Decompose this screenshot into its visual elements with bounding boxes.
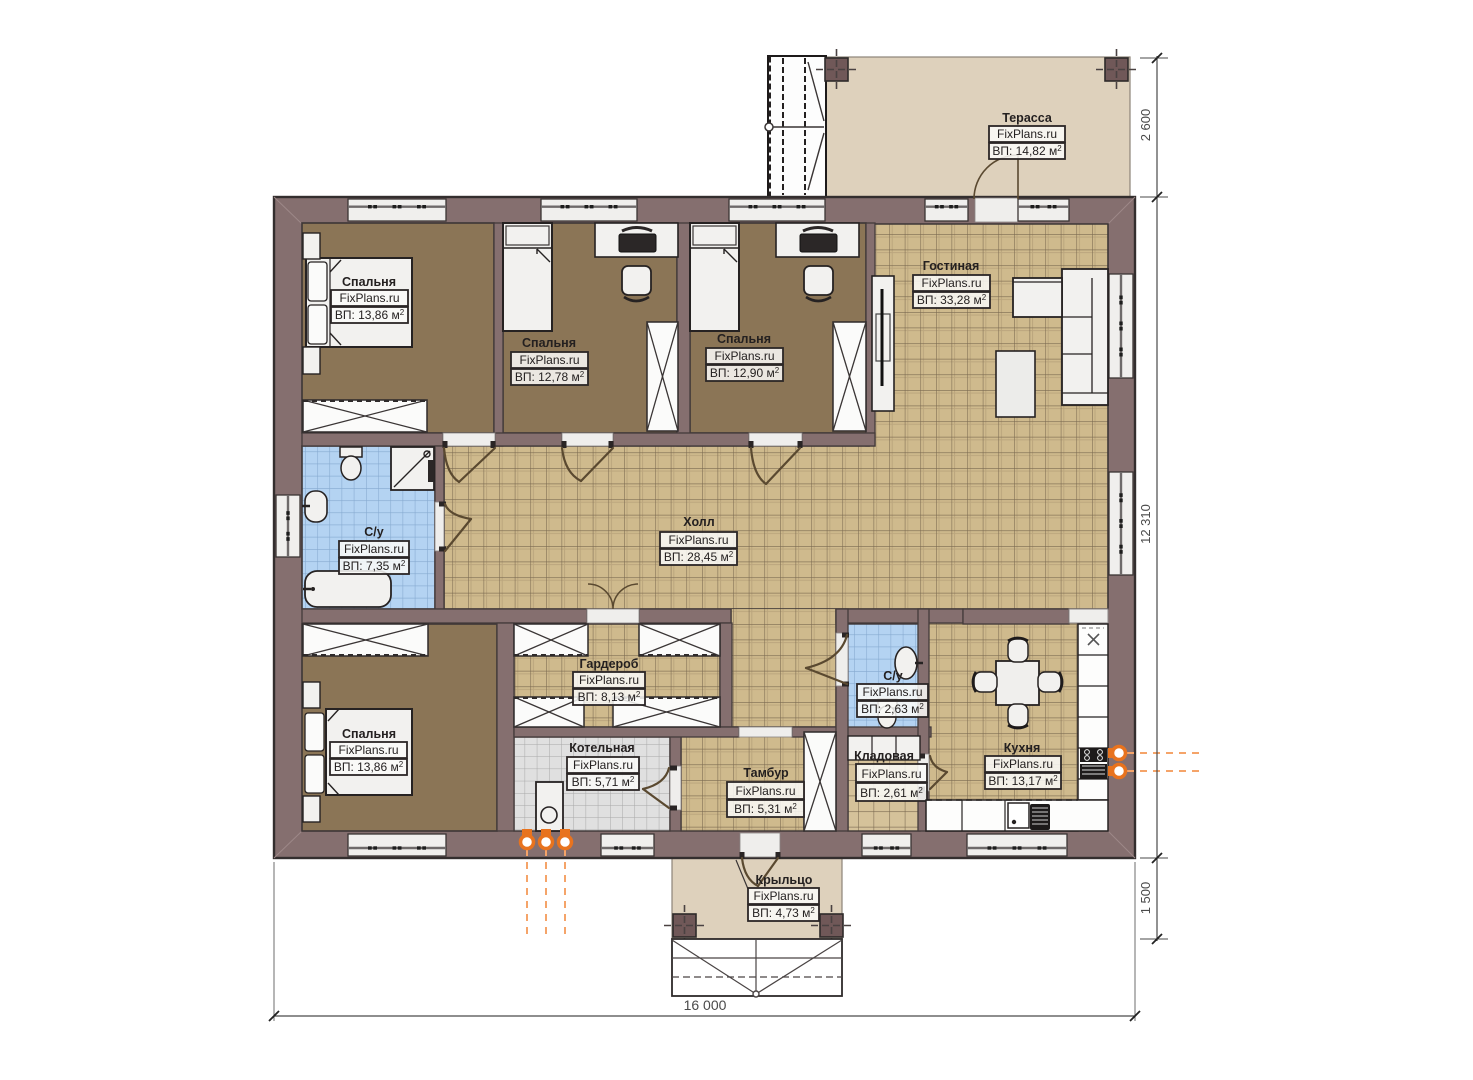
svg-text:ВП: 13,86 м2: ВП: 13,86 м2 bbox=[334, 760, 404, 774]
svg-text:FixPlans.ru: FixPlans.ru bbox=[921, 276, 981, 290]
svg-text:ВП: 12,90 м2: ВП: 12,90 м2 bbox=[710, 366, 780, 380]
svg-text:FixPlans.ru: FixPlans.ru bbox=[339, 291, 399, 305]
svg-text:Терасса: Терасса bbox=[1002, 111, 1053, 125]
svg-text:FixPlans.ru: FixPlans.ru bbox=[861, 767, 921, 781]
svg-text:Тамбур: Тамбур bbox=[743, 766, 789, 780]
svg-text:Спальня: Спальня bbox=[342, 275, 396, 289]
svg-text:16 000: 16 000 bbox=[684, 997, 727, 1013]
svg-text:Гостиная: Гостиная bbox=[923, 259, 980, 273]
svg-text:ВП: 4,73 м2: ВП: 4,73 м2 bbox=[752, 906, 815, 920]
svg-text:FixPlans.ru: FixPlans.ru bbox=[338, 743, 398, 757]
svg-text:ВП: 2,61 м2: ВП: 2,61 м2 bbox=[860, 786, 923, 800]
svg-text:FixPlans.ru: FixPlans.ru bbox=[735, 784, 795, 798]
svg-text:ВП: 7,35 м2: ВП: 7,35 м2 bbox=[343, 559, 406, 573]
svg-text:Кухня: Кухня bbox=[1004, 741, 1041, 755]
svg-text:ВП: 5,31 м2: ВП: 5,31 м2 bbox=[734, 802, 797, 816]
svg-text:Крыльцо: Крыльцо bbox=[756, 873, 813, 887]
svg-text:1 500: 1 500 bbox=[1138, 882, 1153, 915]
svg-text:Спальня: Спальня bbox=[342, 727, 396, 741]
svg-text:Котельная: Котельная bbox=[569, 741, 634, 755]
svg-text:FixPlans.ru: FixPlans.ru bbox=[997, 127, 1057, 141]
svg-text:ВП: 5,71 м2: ВП: 5,71 м2 bbox=[572, 775, 635, 789]
svg-text:2 600: 2 600 bbox=[1138, 109, 1153, 142]
svg-text:Холл: Холл bbox=[683, 515, 714, 529]
svg-text:FixPlans.ru: FixPlans.ru bbox=[753, 889, 813, 903]
svg-text:ВП: 8,13 м2: ВП: 8,13 м2 bbox=[578, 690, 641, 704]
svg-text:Кладовая: Кладовая bbox=[854, 749, 914, 763]
svg-text:ВП: 33,28 м2: ВП: 33,28 м2 bbox=[917, 293, 987, 307]
svg-text:12 310: 12 310 bbox=[1138, 504, 1153, 544]
svg-text:Спальня: Спальня bbox=[717, 332, 771, 346]
svg-text:ВП: 2,63 м2: ВП: 2,63 м2 bbox=[861, 702, 924, 716]
svg-text:Спальня: Спальня bbox=[522, 336, 576, 350]
svg-text:ВП: 12,78 м2: ВП: 12,78 м2 bbox=[515, 370, 585, 384]
svg-text:FixPlans.ru: FixPlans.ru bbox=[344, 542, 404, 556]
svg-text:С/у: С/у bbox=[364, 525, 384, 539]
svg-text:С/у: С/у bbox=[883, 669, 903, 683]
svg-text:FixPlans.ru: FixPlans.ru bbox=[714, 349, 774, 363]
svg-text:ВП: 13,17 м2: ВП: 13,17 м2 bbox=[988, 774, 1058, 788]
svg-text:FixPlans.ru: FixPlans.ru bbox=[573, 758, 633, 772]
svg-text:FixPlans.ru: FixPlans.ru bbox=[579, 673, 639, 687]
svg-text:Гардероб: Гардероб bbox=[579, 657, 638, 671]
svg-text:ВП: 28,45 м2: ВП: 28,45 м2 bbox=[664, 550, 734, 564]
svg-text:FixPlans.ru: FixPlans.ru bbox=[668, 533, 728, 547]
svg-text:ВП: 14,82 м2: ВП: 14,82 м2 bbox=[992, 144, 1062, 158]
svg-text:FixPlans.ru: FixPlans.ru bbox=[993, 757, 1053, 771]
svg-text:FixPlans.ru: FixPlans.ru bbox=[862, 685, 922, 699]
svg-text:FixPlans.ru: FixPlans.ru bbox=[519, 353, 579, 367]
svg-text:ВП: 13,86 м2: ВП: 13,86 м2 bbox=[335, 308, 405, 322]
